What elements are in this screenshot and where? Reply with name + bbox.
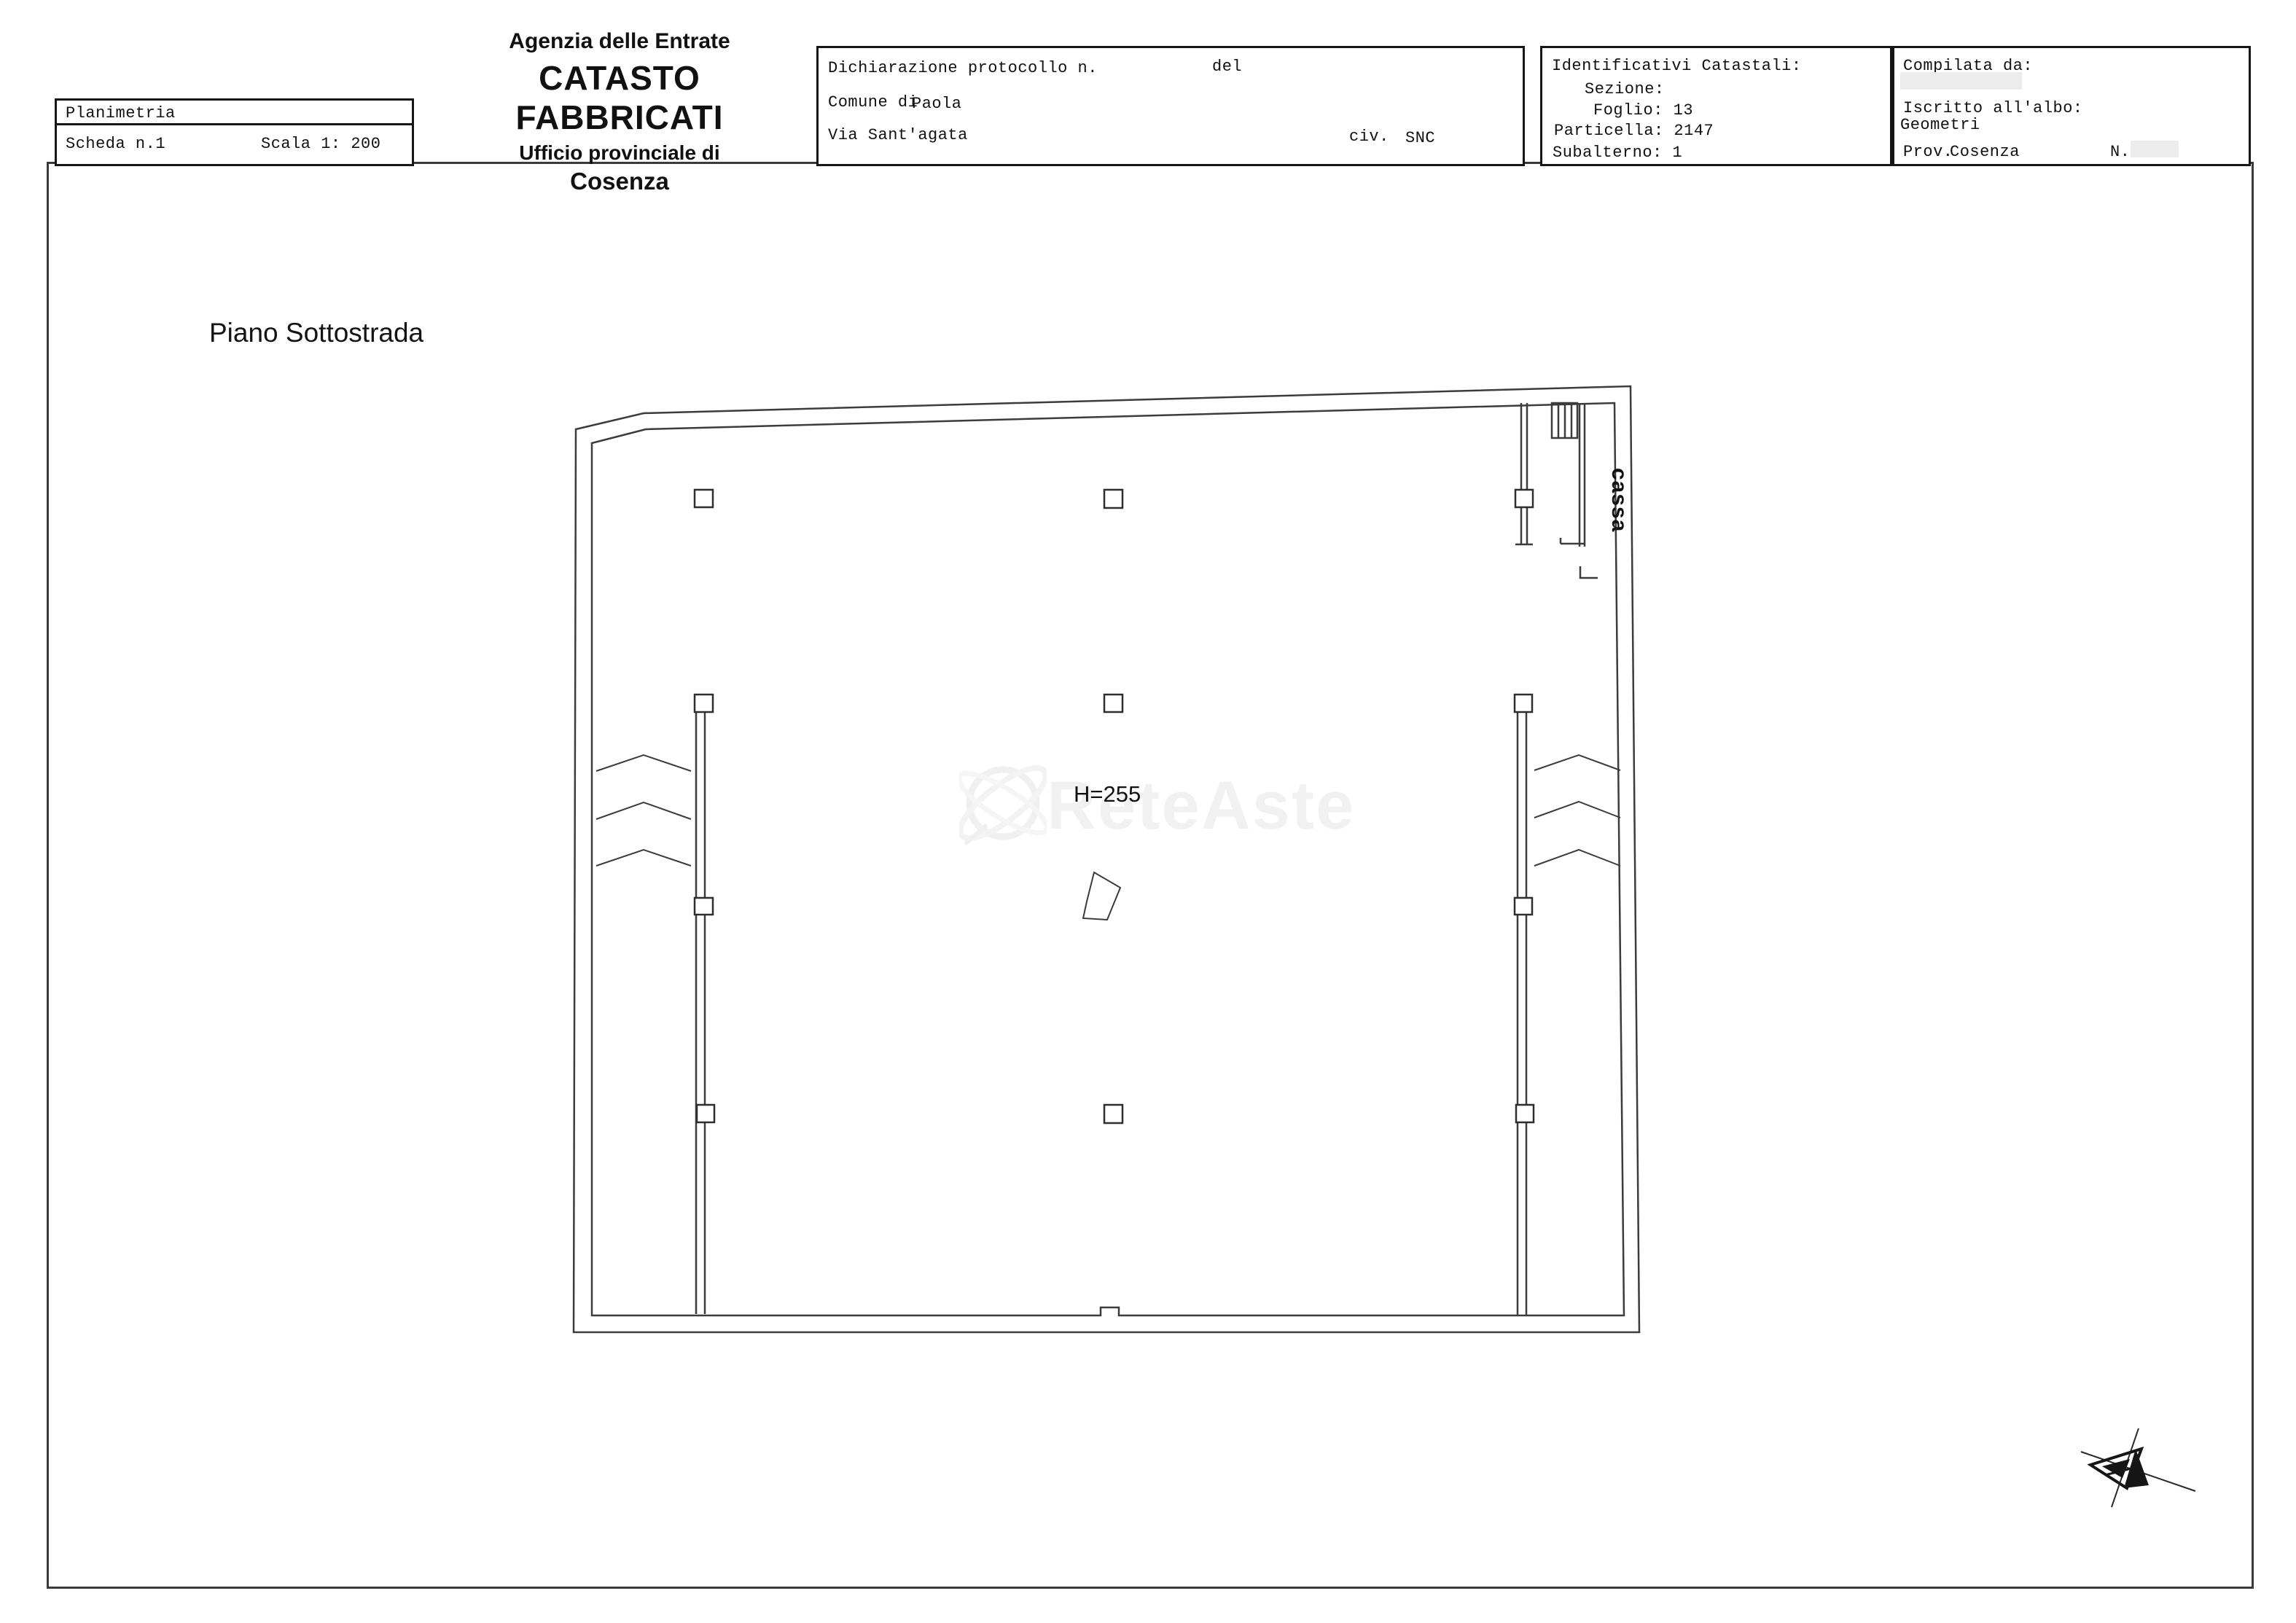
floor-plan: H=255 cassa — [0, 0, 2296, 1623]
pillar — [697, 1105, 714, 1122]
pillar — [695, 695, 713, 712]
pillar — [1516, 1105, 1534, 1122]
cassa-label: cassa — [1607, 468, 1631, 532]
door-jamb — [1580, 566, 1598, 578]
pillar — [1515, 898, 1532, 915]
pillar — [1104, 1105, 1122, 1123]
interior-wall-right — [1518, 695, 1526, 1315]
pillar — [1104, 695, 1122, 712]
pillar — [1515, 490, 1533, 507]
stairs — [1552, 403, 1585, 547]
ramp-chevrons-right — [1534, 755, 1620, 866]
interior-wall-left — [696, 695, 705, 1314]
center-polygon — [1083, 872, 1120, 920]
pillar — [695, 898, 713, 915]
pillar — [695, 490, 713, 507]
interior-wall-top-right — [1515, 403, 1533, 544]
north-arrow-icon — [2081, 1428, 2195, 1507]
height-label: H=255 — [1074, 781, 1141, 807]
pillar — [1104, 490, 1122, 508]
pillar — [1515, 695, 1532, 712]
ramp-chevrons-left — [596, 755, 691, 866]
document-page: Planimetria Scheda n.1 Scala 1: 200 Agen… — [0, 0, 2296, 1623]
outer-wall — [574, 386, 1639, 1332]
inner-wall — [592, 403, 1624, 1315]
